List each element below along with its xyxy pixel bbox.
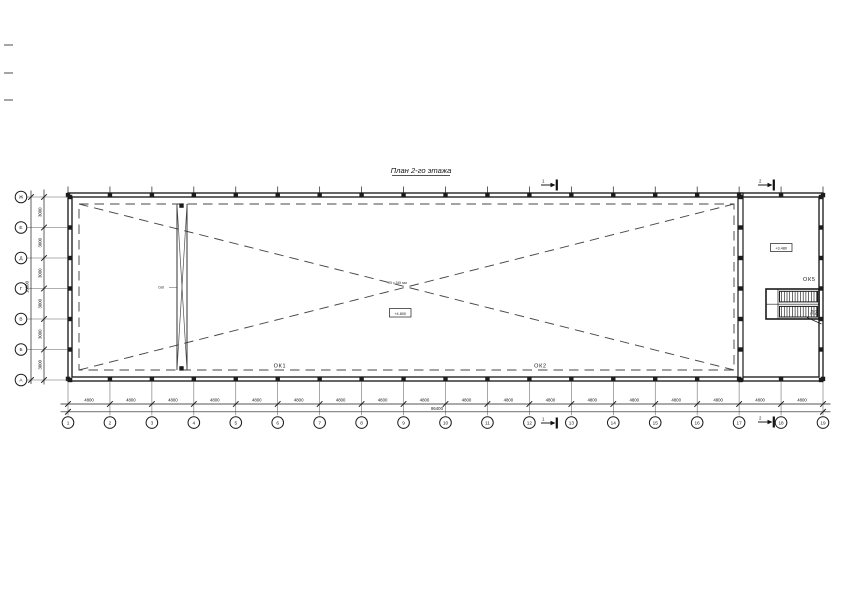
bay-dimension: 3000	[38, 329, 43, 339]
column-mark	[819, 347, 823, 351]
drawing-sheet: План 2-го этажа Св8 25 х 345 мм +4.800 О…	[0, 0, 842, 595]
column-mark	[485, 193, 489, 197]
floor-plan-canvas: План 2-го этажа Св8 25 х 345 мм +4.800 О…	[0, 0, 842, 595]
bay-dimension: 4800	[420, 397, 430, 402]
column-mark	[192, 377, 196, 381]
plan-title: План 2-го этажа	[391, 166, 452, 175]
column-mark	[738, 378, 742, 382]
grid-col-label: 10	[443, 420, 449, 425]
building-walls	[68, 193, 823, 381]
grid-col-label: 2	[109, 420, 112, 425]
bay-dimension: 3000	[38, 237, 43, 247]
grid-col-label: 3	[151, 420, 154, 425]
column-mark	[68, 225, 72, 229]
bay-dimension: 4800	[252, 397, 262, 402]
bay-dimension: 4800	[629, 397, 639, 402]
column-mark	[819, 378, 823, 382]
brace-mark-label: Св8	[158, 286, 164, 290]
column-mark	[108, 377, 112, 381]
grid-col-label: 17	[737, 420, 743, 425]
bay-dimension: 4800	[210, 397, 220, 402]
column-mark	[611, 377, 615, 381]
section-number: 1	[542, 178, 545, 183]
column-mark	[738, 317, 742, 321]
section-arrow-icon	[551, 421, 556, 425]
column-mark	[68, 347, 72, 351]
section-number: 2	[759, 178, 762, 183]
column-mark	[569, 193, 573, 197]
grid-row-label: В	[19, 317, 22, 322]
total-width-dimension: 86400	[431, 406, 444, 411]
column-mark	[819, 317, 823, 321]
column-mark	[485, 377, 489, 381]
stair-mark-l2: Л2	[810, 311, 818, 317]
grid-col-label: 16	[695, 420, 701, 425]
section-cut-mark: 2	[758, 178, 774, 190]
grid-col-label: 1	[67, 420, 70, 425]
bay-dimension: 4800	[378, 397, 388, 402]
grid-row-label: Е	[19, 225, 22, 230]
column-mark	[150, 193, 154, 197]
column-mark	[68, 317, 72, 321]
column-mark	[68, 256, 72, 260]
bay-dimension: 4800	[713, 397, 723, 402]
inner-wall-face	[72, 197, 819, 377]
center-level-mark: +4.800	[390, 309, 412, 318]
column-mark	[234, 377, 238, 381]
section-arrow-icon	[768, 420, 773, 424]
column-mark	[738, 347, 742, 351]
column-mark	[569, 377, 573, 381]
column-mark	[819, 286, 823, 290]
grid-row-label: Г	[20, 286, 23, 291]
grid-col-label: 5	[234, 420, 237, 425]
right-level-value: +3.480	[775, 247, 787, 251]
column-mark	[819, 256, 823, 260]
column-mark	[738, 195, 742, 199]
bay-dimension: 4800	[336, 397, 346, 402]
sheet-margin-marks	[4, 45, 13, 100]
column-mark	[401, 193, 405, 197]
bay-dimension: 3000	[38, 359, 43, 369]
column-mark	[317, 377, 321, 381]
total-height-dimension: 18000	[25, 280, 30, 293]
section-arrow-icon	[768, 183, 773, 187]
grid-col-label: 19	[820, 420, 826, 425]
grid-col-label: 14	[611, 420, 617, 425]
grid-col-label: 7	[318, 420, 321, 425]
column-mark	[527, 193, 531, 197]
column-mark	[819, 195, 823, 199]
column-mark	[359, 377, 363, 381]
bay-dimension: 4800	[755, 397, 765, 402]
column-mark	[150, 377, 154, 381]
column-mark	[68, 286, 72, 290]
bay-dimension: 4800	[588, 397, 598, 402]
column-mark	[653, 377, 657, 381]
section-cut-mark: 1	[541, 178, 557, 190]
bay-dimension: 4800	[546, 397, 556, 402]
section-arrow-icon	[551, 183, 556, 187]
column-mark	[192, 193, 196, 197]
section-cut-mark: 2	[758, 415, 774, 427]
column-mark	[276, 377, 280, 381]
outer-wall-outline	[68, 193, 823, 381]
vertical-brace-element: Св8	[158, 203, 187, 370]
column-mark	[653, 193, 657, 197]
brace-node	[179, 203, 183, 207]
right-room: +3.480 ОК5 Л2	[766, 244, 822, 325]
column-mark	[443, 193, 447, 197]
window-mark-ok1: ОК1	[274, 364, 287, 370]
bay-dimension: 3000	[38, 268, 43, 278]
stair-flight-upper	[780, 291, 818, 302]
grid-col-label: 4	[193, 420, 196, 425]
column-mark	[738, 225, 742, 229]
column-mark	[68, 195, 72, 199]
grid-col-label: 8	[360, 420, 363, 425]
column-mark	[401, 377, 405, 381]
window-mark-ok2: ОК2	[534, 364, 547, 370]
section-cut-mark: 1	[541, 416, 557, 428]
bay-dimension: 3000	[38, 298, 43, 308]
grid-col-label: 11	[485, 420, 490, 425]
bay-dimension: 4800	[797, 397, 807, 402]
column-mark	[779, 193, 783, 197]
bay-dimension: 4800	[126, 397, 136, 402]
column-mark	[276, 193, 280, 197]
section-number: 2	[759, 415, 762, 420]
brace-node	[179, 366, 183, 370]
grid-row-label: Б	[19, 347, 22, 352]
section-number: 1	[542, 416, 545, 421]
bay-dimension: 3000	[38, 207, 43, 217]
window-mark-ok5: ОК5	[803, 277, 816, 283]
center-note: 25 х 345 мм	[388, 281, 407, 285]
bay-dimension: 4800	[671, 397, 681, 402]
column-mark	[443, 377, 447, 381]
column-mark	[317, 193, 321, 197]
column-mark	[527, 377, 531, 381]
grid-col-label: 6	[276, 420, 279, 425]
column-mark	[695, 377, 699, 381]
row-grid: Ж3000Е3000Д3000Г3000В3000Б3000А	[15, 191, 823, 386]
center-level-value: +4.800	[394, 312, 406, 316]
column-mark	[68, 378, 72, 382]
vertical-dimension-lines: 18000	[25, 190, 44, 385]
grid-col-label: 9	[402, 420, 405, 425]
bay-dimension: 4800	[84, 397, 94, 402]
column-mark	[611, 193, 615, 197]
column-mark	[695, 193, 699, 197]
column-mark	[359, 193, 363, 197]
column-mark	[738, 286, 742, 290]
grid-col-label: 12	[527, 420, 533, 425]
bay-dimension: 4800	[462, 397, 472, 402]
bay-dimension: 4800	[294, 397, 304, 402]
grid-col-label: 18	[778, 420, 784, 425]
grid-row-label: Ж	[19, 195, 24, 200]
bay-dimension: 4800	[504, 397, 514, 402]
column-mark	[738, 256, 742, 260]
column-mark	[108, 193, 112, 197]
column-mark	[234, 193, 238, 197]
grid-col-label: 15	[653, 420, 659, 425]
column-mark	[779, 377, 783, 381]
grid-col-label: 13	[569, 420, 575, 425]
bay-dimension: 4800	[168, 397, 178, 402]
column-mark	[819, 225, 823, 229]
